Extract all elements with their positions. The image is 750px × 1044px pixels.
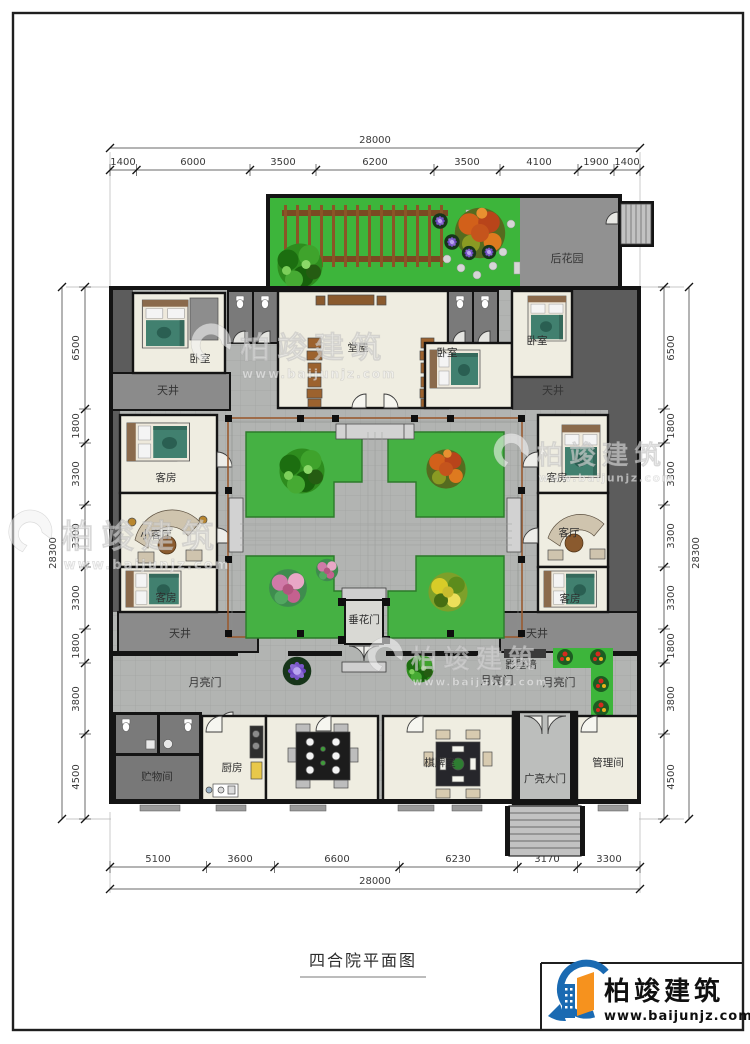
dim-left-seg: 6500 — [71, 335, 82, 360]
dim-left-seg: 1800 — [71, 633, 82, 658]
bench-west — [229, 498, 243, 552]
dim-bottom-seg: 5100 — [145, 854, 170, 865]
back-garden: 后花园 — [266, 194, 654, 294]
dim-top-seg: 6000 — [180, 157, 205, 168]
svg-text:柏竣建筑: 柏竣建筑 — [537, 440, 667, 471]
dim-bottom-seg: 6600 — [324, 854, 349, 865]
dim-left-seg: 3800 — [71, 686, 82, 711]
dim-right-seg: 3300 — [666, 585, 677, 610]
svg-text:www.baijunjz.com: www.baijunjz.com — [538, 472, 674, 484]
dim-top-seg: 1400 — [614, 157, 639, 168]
label-storage: 贮物间 — [141, 770, 173, 783]
dimension-right: 6500 1800 3300 3300 3300 1800 3800 4500 … — [639, 283, 702, 823]
logo-url: www.baijunjz.com — [604, 1009, 750, 1024]
dim-right-seg: 3300 — [666, 523, 677, 548]
svg-text:柏竣建筑: 柏竣建筑 — [411, 644, 541, 675]
grand-gate: 广亮大门 — [513, 712, 577, 804]
dim-right-seg: 1800 — [666, 633, 677, 658]
label-bedroom: 卧室 — [437, 346, 458, 359]
dim-left-total: 28300 — [48, 537, 59, 569]
svg-text:www.baijunjz.com: www.baijunjz.com — [64, 558, 231, 573]
dim-top-seg: 4100 — [526, 157, 551, 168]
dim-top-seg: 6200 — [362, 157, 387, 168]
label-festoon-gate: 垂花门 — [348, 613, 380, 626]
dim-bottom-seg: 3600 — [227, 854, 252, 865]
dim-left-seg: 1800 — [71, 413, 82, 438]
dim-bottom-seg: 6230 — [445, 854, 470, 865]
label-chess-room: 棋牌室 — [424, 756, 456, 769]
label-skywell: 天井 — [169, 626, 191, 640]
garden-paving — [520, 198, 618, 290]
dim-top-seg: 3500 — [270, 157, 295, 168]
label-guest-room: 客房 — [156, 591, 177, 604]
label-skywell: 天井 — [157, 383, 179, 397]
label-guest-room: 客房 — [560, 592, 581, 605]
label-management: 管理间 — [592, 756, 624, 769]
dim-right-seg: 4500 — [666, 764, 677, 789]
logo-name: 柏竣建筑 — [604, 976, 724, 1007]
dim-top-seg: 3500 — [454, 157, 479, 168]
dim-bottom-total: 28000 — [359, 876, 391, 887]
label-bedroom: 卧室 — [527, 334, 548, 347]
dim-top-total: 28000 — [359, 135, 391, 146]
label-moon-gate: 月亮门 — [189, 675, 222, 689]
dining-table — [288, 724, 358, 788]
dim-right-seg: 1800 — [666, 413, 677, 438]
floorplan-canvas: 28000 1400 6000 3500 6200 3500 4100 1900… — [0, 0, 750, 1044]
bench-east — [507, 498, 521, 552]
dim-right-seg: 6500 — [666, 335, 677, 360]
label-skywell: 天井 — [542, 383, 564, 397]
label-back-garden: 后花园 — [551, 252, 584, 265]
label-kitchen: 厨房 — [222, 761, 243, 774]
dim-left-seg: 3300 — [71, 461, 82, 486]
label-grand-gate: 广亮大门 — [524, 772, 566, 785]
label-skywell: 天井 — [526, 626, 548, 640]
bathrooms-right — [448, 291, 498, 343]
dim-right-seg: 3800 — [666, 686, 677, 711]
drawing-title: 四合院平面图 — [300, 951, 426, 977]
page-title: 四合院平面图 — [309, 951, 417, 970]
drawing-page: 28000 1400 6000 3500 6200 3500 4100 1900… — [0, 0, 750, 1044]
label-living-room: 客厅 — [559, 526, 580, 539]
entrance-steps — [505, 806, 585, 856]
dim-left-seg: 4500 — [71, 764, 82, 789]
dim-right-total: 28300 — [691, 537, 702, 569]
logo-mark — [548, 963, 606, 1021]
dim-left-seg: 3300 — [71, 585, 82, 610]
svg-text:www.baijunjz.com: www.baijunjz.com — [242, 367, 397, 381]
dim-top-seg: 1900 — [583, 157, 608, 168]
dim-top-seg: 1400 — [110, 157, 135, 168]
svg-text:柏竣建筑: 柏竣建筑 — [240, 331, 388, 366]
svg-text:柏竣建筑: 柏竣建筑 — [62, 517, 222, 555]
logo-block: 柏竣建筑 www.baijunjz.com — [541, 963, 750, 1029]
dim-bottom-seg: 3300 — [596, 854, 621, 865]
svg-text:www.baijunjz.com: www.baijunjz.com — [412, 676, 548, 688]
label-guest-room: 客房 — [156, 471, 177, 484]
